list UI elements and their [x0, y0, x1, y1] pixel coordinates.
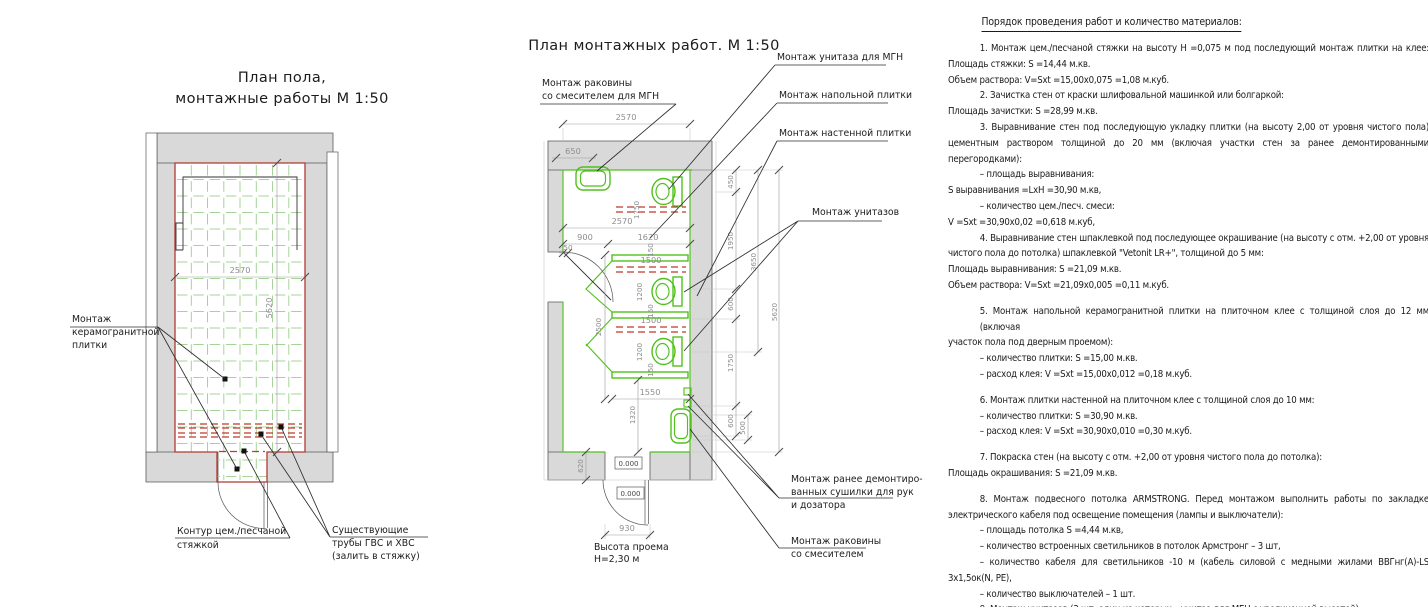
plan-title: монтажные работы М 1:50 — [175, 91, 388, 107]
dimension-label: 450 — [726, 175, 735, 189]
callout-label: Монтаж раковины — [791, 536, 881, 547]
note-label: Н=2,30 м — [594, 554, 639, 565]
worklist-line: – количество кабеля для светильников -10… — [948, 555, 1428, 571]
worklist-line: 8. Монтаж подвесного потолка ARMSTRONG. … — [948, 492, 1428, 508]
drawing-sheet: План пола, монтажные работы М 1:50 2570 … — [0, 0, 1428, 607]
callout-label: Монтаж унитаза для МГН — [777, 52, 903, 63]
worklist-line: электрического кабеля под освещение поме… — [948, 508, 1428, 524]
worklist-line: участок пола под дверным проемом): — [948, 335, 1428, 351]
callout-label: Контур цем./песчаной — [177, 526, 286, 537]
worklist-line: 5. Монтаж напольной керамогранитной плит… — [948, 304, 1428, 336]
dimension-label: 500 — [738, 421, 747, 435]
worklist-line: 1. Монтаж цем./песчаной стяжки на высоту… — [948, 41, 1428, 57]
callout-label: Монтаж раковины — [542, 78, 632, 89]
dimension-label: 1500 — [641, 255, 662, 265]
dimension-label: 600 — [726, 297, 735, 311]
plan-title: План монтажных работ. М 1:50 — [528, 38, 779, 54]
worklist-line: – расход клея: V =Sxt =30,90х0,010 =0,30… — [948, 424, 1428, 440]
callout-dryer: Монтаж ранее демонтиро- ванных сушилки д… — [688, 394, 923, 511]
dimension-label: 600 — [726, 414, 735, 428]
dimension-label: 2570 — [616, 112, 637, 122]
dimension-label: 1320 — [628, 405, 637, 424]
worklist-line: 9. Монтаж унитазов (3 шт, один из которы… — [948, 602, 1428, 607]
callout-label: (залить в стяжку) — [332, 551, 420, 562]
dimension-label: 1950 — [726, 231, 735, 250]
worklist-line: 6. Монтаж плитки настенной на плиточном … — [948, 393, 1428, 409]
worklist-line: – количество плитки: S =15,00 м.кв. — [948, 351, 1428, 367]
door-swing — [218, 482, 268, 529]
wall-tile-outline — [563, 170, 690, 452]
dimension-label: 930 — [619, 523, 635, 533]
dimension-label: 1750 — [726, 353, 735, 372]
worklist-line: Объем раствора: V=Sxt =21,09х0,005 =0,11… — [948, 278, 1428, 294]
work-order-list: Порядок проведения работ и количество ма… — [948, 10, 1428, 607]
callout-label: плитки — [72, 340, 107, 351]
worklist-line: S выравнивания =LxH =30,90 м.кв, — [948, 183, 1428, 199]
callout-label: со смесителем для МГН — [542, 91, 659, 102]
callout-label: со смесителем — [791, 549, 864, 560]
door-height-note: Высота проема Н=2,30 м — [594, 542, 669, 565]
worklist-line: 4. Выравнивание стен шпаклевкой под посл… — [948, 231, 1428, 247]
dimension-label: 150 — [646, 363, 655, 377]
dimension-label: 620 — [576, 459, 585, 473]
dimension-label: 50 — [563, 243, 573, 252]
callout-label: Монтаж напольной плитки — [779, 90, 912, 101]
dimension-label: 900 — [577, 232, 593, 242]
worklist-line: цементным раствором толщиной до 20 мм (в… — [948, 136, 1428, 152]
plan-title: План пола, — [238, 70, 326, 86]
worklist-line: 3х1,5ок(N, PE), — [948, 571, 1428, 587]
dimension-label: 5620 — [264, 298, 274, 319]
worklist-line: – количество встроенных светильников в п… — [948, 539, 1428, 555]
dimension-label: 1550 — [640, 387, 661, 397]
sink-icon — [671, 409, 691, 443]
callout-label: Существующие — [332, 525, 409, 536]
worklist-line: 2. Зачистка стен от краски шлифовальной … — [948, 88, 1428, 104]
door-swing-left — [563, 252, 613, 302]
worklist-line: 3. Выравнивание стен под последующую укл… — [948, 120, 1428, 136]
stall-doors — [586, 261, 612, 372]
toilet-icon — [652, 277, 682, 306]
callout-label: Монтаж — [72, 314, 112, 325]
dimension-label: 5620 — [770, 302, 779, 321]
dimension-label: 1200 — [635, 342, 644, 361]
callout-label: стяжкой — [177, 540, 219, 551]
worklist-line: Объем раствора: V=Sxt =15,00х0,075 =1,08… — [948, 73, 1428, 89]
dimension-label: 1500 — [641, 315, 662, 325]
dimension-label: 1200 — [635, 282, 644, 301]
installation-plan: План монтажных работ. М 1:50 — [528, 38, 922, 565]
floor-plan-left: План пола, монтажные работы М 1:50 2570 … — [70, 70, 428, 562]
outer-wall-strip — [327, 152, 338, 452]
elevation-marker: 0.000 0.000 — [615, 457, 644, 499]
toilet-icon — [652, 337, 682, 366]
worklist-line: – площадь потолка S =4,44 м.кв, — [948, 523, 1428, 539]
toilet-mgn-icon — [652, 177, 682, 206]
worklist-line: Площадь окрашивания: S =21,09 м.кв. — [948, 466, 1428, 482]
elevation-value: 0.000 — [620, 490, 640, 498]
worklist-line: Площадь зачистки: S =28,99 м.кв. — [948, 104, 1428, 120]
callout-label: трубы ГВС и ХВС — [332, 538, 415, 549]
callout-label: Монтаж ранее демонтиро- — [791, 474, 923, 485]
worklist-line: – количество выключателей – 1 шт. — [948, 587, 1428, 603]
dimension-label: 2500 — [594, 317, 603, 336]
worklist-line: V =Sxt =30,90х0,02 =0,618 м.куб, — [948, 215, 1428, 231]
worklist-line: – площадь выравнивания: — [948, 167, 1428, 183]
callout-label: и дозатора — [791, 500, 845, 511]
worklist-line: – количество плитки: S =30,90 м.кв. — [948, 409, 1428, 425]
dimension-label: 2570 — [230, 265, 251, 275]
callout-pipes: Существующие трубы ГВС и ХВС (залить в с… — [262, 429, 428, 562]
callout-label: керамогранитной — [72, 327, 159, 338]
worklist-line: 7. Покраска стен (на высоту с отм. +2,00… — [948, 450, 1428, 466]
worklist-line: перегородками): — [948, 152, 1428, 168]
worklist-line: – количество цем./песч. смеси: — [948, 199, 1428, 215]
dimension-label: 2570 — [612, 216, 633, 226]
dimension-label: 650 — [565, 146, 581, 156]
dimension-label: 1620 — [638, 232, 659, 242]
wall-finish-line — [176, 177, 297, 250]
callout-label: ванных сушилки для рук — [791, 487, 914, 498]
note-label: Высота проема — [594, 542, 669, 553]
callout-label: Монтаж настенной плитки — [779, 128, 911, 139]
outer-wall-strip — [146, 133, 157, 452]
worklist-line: чистого пола до потолка) шпаклевкой "Vet… — [948, 246, 1428, 262]
worklist-line: Площадь выравнивания: S =21,09 м.кв. — [948, 262, 1428, 278]
worklist-line: Площадь стяжки: S =14,44 м.кв. — [948, 57, 1428, 73]
callout-label: Монтаж унитазов — [812, 207, 899, 218]
dimension-label: 1750 — [632, 200, 641, 219]
elevation-value: 0.000 — [618, 460, 638, 468]
worklist-line: – расход клея: V =Sxt =15,00х0,012 =0,18… — [948, 367, 1428, 383]
work-order-title: Порядок проведения работ и количество ма… — [981, 16, 1241, 32]
